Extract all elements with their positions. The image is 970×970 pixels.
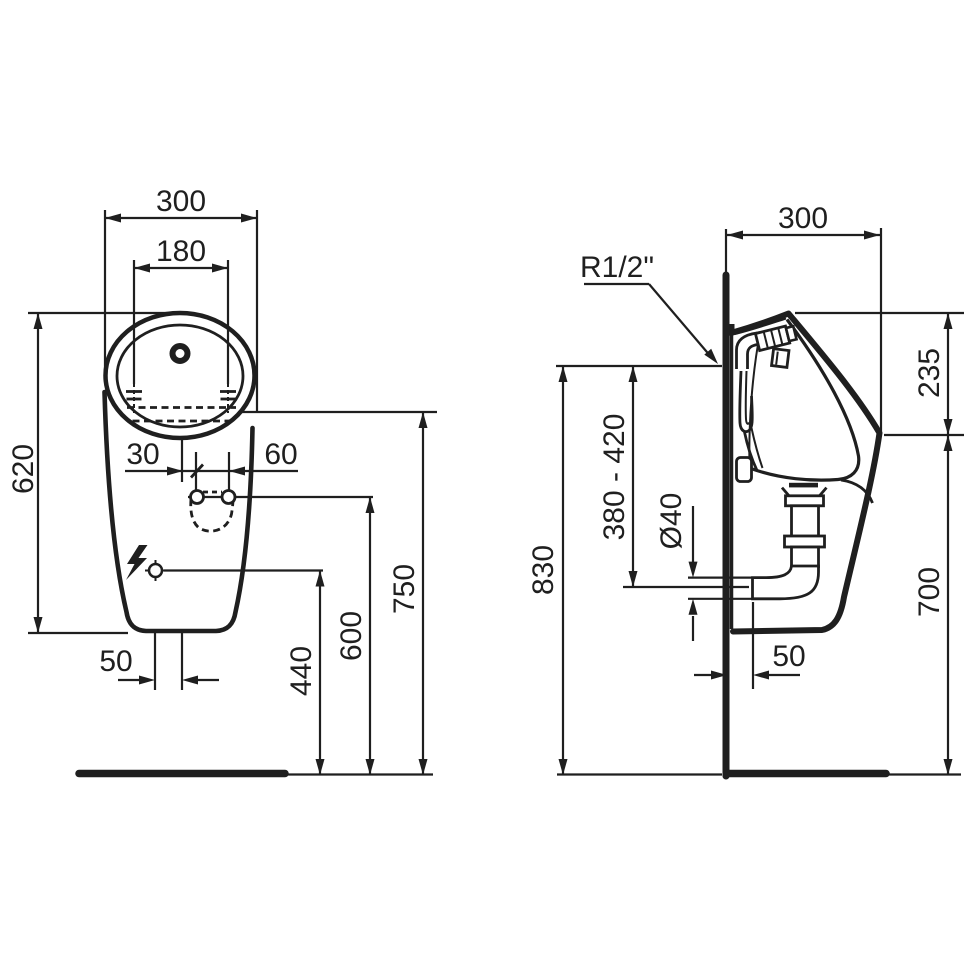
nut-spigot [786,326,797,341]
arrowhead [105,214,121,223]
side-view: 300 R1/2" 830 380 - 420 [527,202,964,776]
wall-contact-pad [728,324,735,333]
front-view: 300 180 620 30 60 [7,185,437,775]
drain-coupling [785,536,825,547]
arrowhead [229,467,245,476]
dim-label-fixing-height: 600 [335,611,368,661]
drain-elbow [753,566,819,599]
flush-inlet-hole [173,346,188,361]
dim-label-outlet-bottom-offset: 50 [99,645,132,678]
arrowhead [944,419,953,435]
dim-front-sensor-height: 440 [164,571,325,776]
water-inlet-assembly [737,324,798,470]
fixing-hole-left [191,491,204,504]
arrowhead [944,435,953,451]
technical-drawing-page: 300 180 620 30 60 [0,0,970,970]
arrowhead [139,676,155,685]
arrowhead [629,366,638,382]
arrowhead [727,231,743,240]
dim-label-outlet-offset: 30 [126,438,159,471]
inlet-clamp [772,349,789,368]
dim-front-outlet-and-hole-spacing: 30 60 [125,438,298,478]
dim-side-outlet-wall-offset: 50 [694,602,806,689]
arrowhead [419,412,428,428]
arrowhead [864,231,880,240]
wall-bracket [737,458,752,482]
dim-front-fixing-height: 600 [335,497,375,775]
electric-sensor-lightning-icon [126,545,148,580]
dim-label-overall-width: 300 [156,185,206,218]
dim-label-sensor-height: 440 [285,646,318,696]
dim-label-rim-drop: 235 [913,348,946,398]
clamp-body [772,349,789,368]
arrowhead [366,759,375,775]
leader-line [649,284,712,358]
urinal-dimension-drawing: 300 180 620 30 60 [0,0,970,970]
arrowhead [689,599,698,615]
rim-outer-ellipse [106,313,255,438]
arrowhead [316,571,325,587]
flush-pipe-inner [746,371,749,424]
drain-pipe-upper [792,506,819,536]
dim-label-body-height: 620 [7,444,40,494]
inlet-union-nut [755,324,797,350]
callout-water-inlet-thread: R1/2" [580,251,718,364]
outlet-strainer [789,483,818,488]
arrowhead [559,366,568,382]
dim-label-inlet-height: 830 [527,545,560,595]
dim-label-front-edge-height: 700 [913,567,946,617]
dim-label-outlet-height-range: 380 - 420 [598,414,631,541]
arrowhead [212,264,228,273]
arrowhead [34,313,43,329]
arrowhead [182,676,198,685]
arrowhead [134,264,150,273]
arrowhead [944,759,953,775]
drain-flange [786,496,824,506]
label-water-inlet-thread: R1/2" [580,251,654,284]
drain-outlet-assembly [688,483,827,599]
sensor-point [149,564,162,577]
arrowhead [753,671,769,680]
arrowhead [167,467,183,476]
dim-label-rim-height: 750 [388,564,421,614]
arrowhead [689,562,698,578]
arrowhead [944,313,953,329]
drain-pipe-lower [792,547,819,567]
arrowhead [366,497,375,513]
dim-label-outlet-diameter: Ø40 [655,493,688,550]
arrowhead [316,759,325,775]
arrowhead [419,759,428,775]
fixing-hole-right [222,491,235,504]
dim-side-outlet-diameter: Ø40 [655,493,698,641]
dim-label-overall-depth: 300 [778,202,828,235]
arrowhead [629,571,638,587]
dim-label-outlet-wall-offset: 50 [772,640,805,673]
dim-front-outlet-bottom-offset: 50 [99,645,219,685]
arrowhead [559,759,568,775]
arrowhead [34,617,43,633]
arrowhead [241,214,257,223]
dim-label-hole-spacing: 60 [264,438,297,471]
dim-label-fixing-width: 180 [156,235,206,268]
